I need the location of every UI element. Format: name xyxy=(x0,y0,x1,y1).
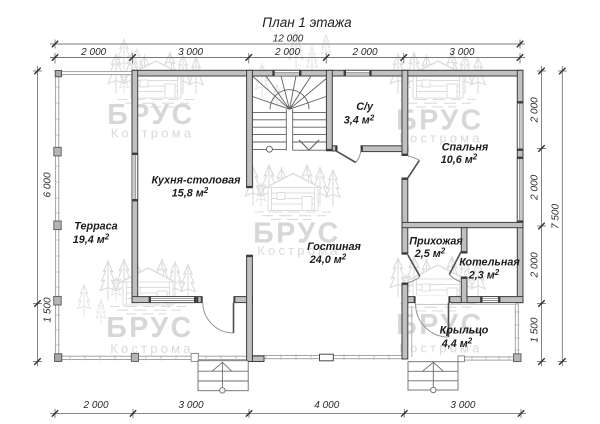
svg-text:6 000: 6 000 xyxy=(43,172,54,197)
svg-text:2 000: 2 000 xyxy=(530,97,541,123)
svg-text:БРУС: БРУС xyxy=(106,312,193,344)
svg-text:24,0 м2: 24,0 м2 xyxy=(309,253,347,266)
svg-text:Спальня: Спальня xyxy=(442,142,489,154)
svg-text:2 000: 2 000 xyxy=(80,47,106,58)
svg-text:2 000: 2 000 xyxy=(530,174,541,200)
svg-text:12 000: 12 000 xyxy=(273,34,304,45)
svg-text:Гостиная: Гостиная xyxy=(307,241,361,253)
svg-text:2 000: 2 000 xyxy=(274,47,300,58)
svg-text:1 500: 1 500 xyxy=(530,317,541,342)
svg-text:Прихожая: Прихожая xyxy=(409,236,463,248)
svg-text:План 1 этажа: План 1 этажа xyxy=(262,15,352,30)
svg-text:4 000: 4 000 xyxy=(314,400,339,411)
svg-text:Котельная: Котельная xyxy=(459,257,520,269)
svg-text:15,8 м2: 15,8 м2 xyxy=(172,186,209,199)
svg-text:3 000: 3 000 xyxy=(450,400,475,411)
svg-text:10,6 м2: 10,6 м2 xyxy=(441,153,478,166)
svg-text:3 000: 3 000 xyxy=(178,47,203,58)
svg-text:2 000: 2 000 xyxy=(82,400,108,411)
svg-text:Кухня-столовая: Кухня-столовая xyxy=(151,175,241,187)
svg-text:3 000: 3 000 xyxy=(178,400,203,411)
svg-text:Кострома: Кострома xyxy=(110,341,193,356)
svg-text:3 000: 3 000 xyxy=(449,47,474,58)
svg-text:С/у: С/у xyxy=(356,101,374,113)
svg-text:7 500: 7 500 xyxy=(550,204,561,229)
svg-text:2 000: 2 000 xyxy=(351,47,377,58)
svg-text:1 500: 1 500 xyxy=(43,297,54,322)
svg-text:Кострома: Кострома xyxy=(111,126,194,141)
svg-text:Крыльцо: Крыльцо xyxy=(440,325,489,337)
svg-text:2 000: 2 000 xyxy=(530,252,541,278)
svg-text:19,4 м2: 19,4 м2 xyxy=(73,233,110,246)
svg-text:Терраса: Терраса xyxy=(74,221,117,233)
